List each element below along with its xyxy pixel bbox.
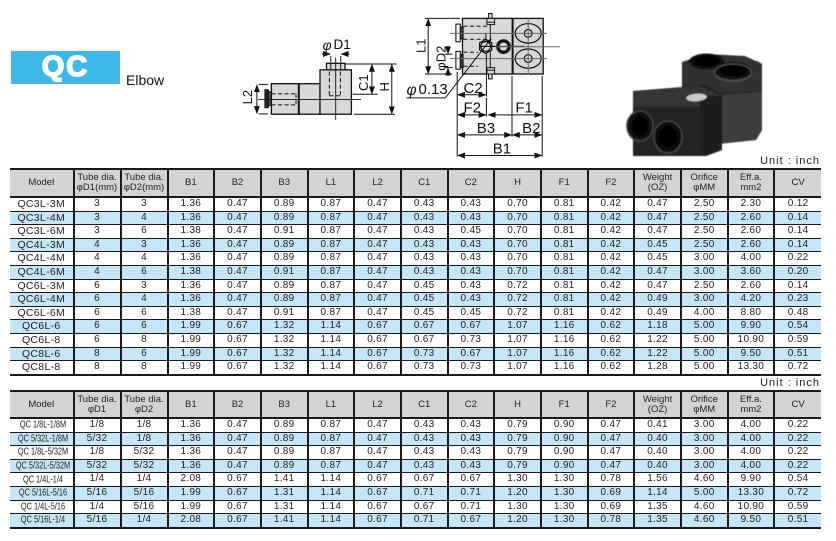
svg-text:D1: D1 — [334, 37, 351, 52]
svg-text:φD2: φD2 — [433, 46, 448, 71]
svg-text:F2: F2 — [464, 100, 482, 117]
svg-text:B1: B1 — [493, 141, 511, 158]
svg-text:L1: L1 — [414, 39, 429, 53]
svg-text:C2: C2 — [464, 80, 483, 97]
svg-text:F1: F1 — [515, 100, 533, 117]
svg-text:H: H — [377, 82, 392, 91]
svg-text:B3: B3 — [477, 120, 495, 137]
svg-text:φ: φ — [323, 37, 332, 53]
svg-text:0.13: 0.13 — [419, 81, 448, 98]
svg-text:B2: B2 — [522, 120, 540, 137]
svg-text:φ: φ — [407, 82, 417, 99]
svg-text:L2: L2 — [240, 90, 255, 104]
svg-text:C1: C1 — [356, 74, 371, 91]
